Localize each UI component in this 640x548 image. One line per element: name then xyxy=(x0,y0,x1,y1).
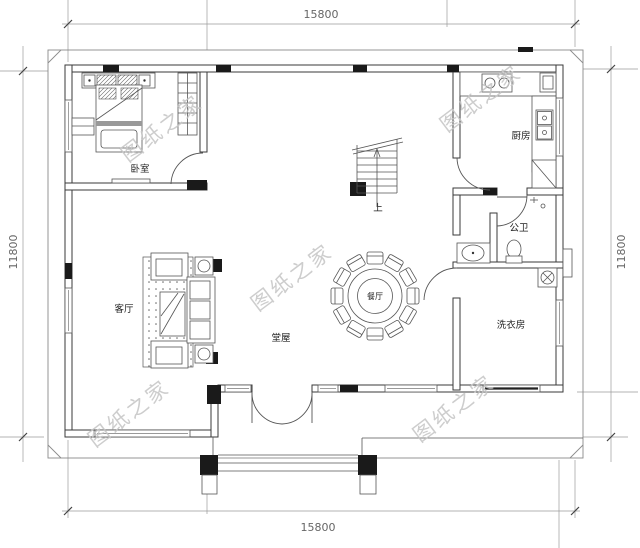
bath-window-bay xyxy=(563,249,572,277)
stair-direction-label: 上 xyxy=(373,203,383,214)
toilet xyxy=(507,240,521,258)
porch-column-base xyxy=(202,475,217,494)
room-label-laundry: 洗衣房 xyxy=(497,319,526,331)
room-label-hall: 堂屋 xyxy=(271,332,290,344)
porch-column xyxy=(200,455,218,475)
console-table xyxy=(112,179,150,183)
dimension-label-bottom: 15800 xyxy=(301,521,336,534)
room-label-bath: 公卫 xyxy=(509,223,529,234)
porch-steps xyxy=(218,455,358,471)
bedroom-door-arc xyxy=(171,153,203,184)
laundry-door-arc xyxy=(424,268,457,300)
sink xyxy=(536,110,553,140)
front-double-door xyxy=(252,392,312,424)
dimension-label-top: 15800 xyxy=(304,8,339,21)
room-label-kitchen: 厨房 xyxy=(511,130,530,142)
bathroom-fixtures xyxy=(457,197,545,263)
bath-door-arc xyxy=(497,195,527,226)
floor-plan-sheet: 15800 15800 11800 11800 xyxy=(0,0,640,548)
dimension-label-right: 11800 xyxy=(615,235,628,270)
room-label-living: 客厅 xyxy=(114,303,134,315)
room-label-dining: 餐厅 xyxy=(367,292,383,301)
floor-plan-svg: 15800 15800 11800 11800 xyxy=(0,0,640,548)
living-room-furniture xyxy=(143,253,222,368)
dresser xyxy=(72,118,94,135)
watermark-text: 图纸之家 xyxy=(84,375,175,452)
dimension-label-left: 11800 xyxy=(7,235,20,270)
stairs xyxy=(352,138,403,207)
kitchen-door-arc xyxy=(457,158,490,190)
porch-column-base xyxy=(360,475,376,494)
laundry-fixtures xyxy=(538,268,557,287)
watermark-text: 图纸之家 xyxy=(247,239,338,316)
porch-column xyxy=(358,455,377,475)
porch xyxy=(200,437,583,494)
